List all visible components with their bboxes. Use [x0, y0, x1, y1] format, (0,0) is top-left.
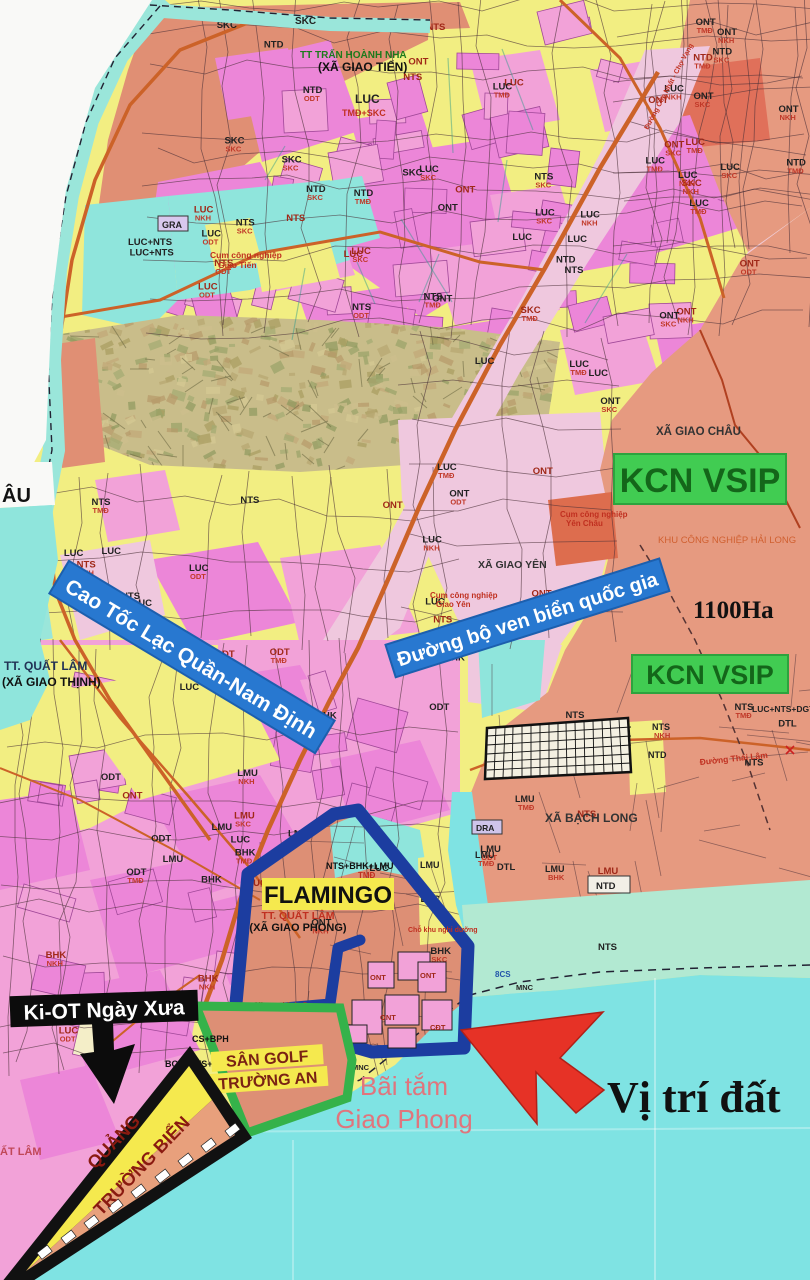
svg-text:NKH: NKH: [654, 731, 670, 740]
svg-text:SKC: SKC: [283, 164, 299, 173]
svg-text:Bãi tắm: Bãi tắm: [360, 1071, 448, 1101]
svg-text:ODT: ODT: [353, 311, 369, 320]
svg-text:Cụm công nghiệp: Cụm công nghiệp: [430, 591, 498, 600]
svg-text:Giao Yên: Giao Yên: [436, 600, 471, 609]
svg-text:NKH: NKH: [199, 982, 215, 991]
svg-text:ONT: ONT: [383, 500, 403, 511]
svg-text:XÃ GIAO YÊN: XÃ GIAO YÊN: [478, 558, 547, 571]
svg-text:NTD: NTD: [556, 254, 576, 265]
svg-text:CĐT: CĐT: [430, 1023, 446, 1032]
svg-text:ẤT LÂM: ẤT LÂM: [0, 1145, 42, 1158]
svg-text:NKH: NKH: [195, 213, 211, 222]
svg-text:TMĐ: TMĐ: [735, 711, 752, 720]
svg-text:LMU: LMU: [598, 866, 619, 877]
svg-text:NKH: NKH: [718, 36, 734, 45]
svg-text:Giao Tiến: Giao Tiến: [218, 260, 257, 270]
svg-text:ODT: ODT: [304, 94, 320, 103]
svg-text:TMĐ: TMĐ: [93, 506, 110, 515]
svg-text:SKC: SKC: [295, 16, 316, 27]
svg-text:SKC: SKC: [225, 145, 241, 154]
svg-text:ONT: ONT: [408, 57, 428, 68]
svg-text:TMĐ: TMĐ: [570, 368, 587, 377]
svg-text:DRA: DRA: [476, 823, 494, 833]
svg-text:ODT: ODT: [450, 498, 466, 507]
svg-text:TMĐ: TMĐ: [522, 314, 539, 323]
svg-text:Vị trí đất: Vị trí đất: [607, 1073, 781, 1122]
svg-text:NTD: NTD: [648, 750, 667, 760]
svg-text:ODT: ODT: [741, 267, 757, 276]
svg-text:NTS: NTS: [598, 942, 617, 953]
svg-text:ODT: ODT: [190, 572, 206, 581]
svg-text:TMĐ: TMĐ: [358, 871, 376, 880]
svg-text:8CS: 8CS: [495, 970, 511, 979]
svg-text:KHU CÔNG NGHIỆP HẢI LONG: KHU CÔNG NGHIỆP HẢI LONG: [658, 534, 796, 546]
svg-text:TMĐ: TMĐ: [271, 656, 288, 665]
svg-text:SKC: SKC: [536, 217, 552, 226]
svg-text:TMĐ: TMĐ: [690, 207, 707, 216]
svg-text:DTL: DTL: [497, 862, 516, 873]
svg-text:ONT: ONT: [533, 466, 553, 477]
svg-text:LUC: LUC: [588, 368, 608, 379]
svg-text:ODT: ODT: [202, 238, 218, 247]
svg-text:TMĐ: TMĐ: [355, 197, 372, 206]
svg-text:TMĐ: TMĐ: [494, 90, 511, 99]
svg-text:CS+BPH: CS+BPH: [192, 1034, 229, 1044]
svg-text:ODT: ODT: [60, 1035, 76, 1044]
svg-text:1100Ha: 1100Ha: [693, 597, 774, 624]
svg-text:NTD: NTD: [264, 40, 284, 51]
svg-text:SKC: SKC: [235, 820, 251, 829]
svg-text:ODT: ODT: [101, 772, 121, 783]
svg-text:SKC: SKC: [420, 173, 436, 182]
svg-text:TT. QUẤT LÂM: TT. QUẤT LÂM: [262, 909, 335, 922]
svg-text:NKH: NKH: [780, 113, 796, 122]
svg-text:SKC: SKC: [660, 320, 676, 329]
svg-text:ODT: ODT: [199, 290, 215, 299]
svg-text:ONT: ONT: [432, 294, 452, 305]
svg-text:LUC+NTS: LUC+NTS: [128, 237, 172, 248]
svg-text:TMĐ: TMĐ: [518, 803, 535, 812]
svg-text:LMU: LMU: [212, 822, 233, 833]
svg-text:MNC: MNC: [516, 983, 534, 992]
svg-text:TMĐ: TMĐ: [478, 859, 495, 868]
svg-text:NTS: NTS: [286, 213, 305, 224]
svg-text:TMĐ+SKC: TMĐ+SKC: [342, 108, 386, 118]
svg-text:(XÃ GIAO TIẾN): (XÃ GIAO TIẾN): [318, 59, 407, 74]
svg-text:NTS: NTS: [240, 495, 259, 506]
svg-text:TMĐ: TMĐ: [438, 471, 455, 480]
svg-text:Cụm công nghiệp: Cụm công nghiệp: [560, 510, 628, 519]
svg-text:NTD: NTD: [596, 881, 616, 892]
svg-text:ODT: ODT: [151, 834, 171, 845]
svg-text:SKC: SKC: [535, 180, 551, 189]
svg-text:NTS+BHK+LMU: NTS+BHK+LMU: [326, 861, 394, 871]
svg-text:(XÃ GIAO THỊNH): (XÃ GIAO THỊNH): [2, 674, 101, 689]
svg-text:TMĐ: TMĐ: [127, 876, 144, 885]
svg-text:TT. QUẤT LÂM: TT. QUẤT LÂM: [4, 658, 87, 673]
svg-text:ÂU: ÂU: [2, 483, 31, 507]
svg-text:(XÃ GIAO PHONG): (XÃ GIAO PHONG): [249, 921, 347, 934]
svg-text:ODT: ODT: [429, 702, 449, 713]
svg-text:NKH: NKH: [581, 218, 597, 227]
svg-text:LUC: LUC: [512, 232, 532, 243]
svg-text:Chỗ khu nghỉ dưỡng: Chỗ khu nghỉ dưỡng: [408, 925, 478, 934]
svg-text:LUC: LUC: [231, 834, 251, 845]
svg-text:KCN VSIP: KCN VSIP: [620, 462, 781, 500]
svg-text:NKH: NKH: [47, 959, 63, 968]
svg-text:KCN VSIP: KCN VSIP: [646, 660, 774, 690]
svg-text:LMU: LMU: [420, 860, 440, 870]
svg-text:SKC: SKC: [601, 405, 617, 414]
svg-text:Giao Phong: Giao Phong: [335, 1104, 472, 1134]
svg-text:LUC+NTS+DGT: LUC+NTS+DGT: [752, 704, 810, 714]
svg-text:SKC: SKC: [714, 55, 730, 64]
svg-text:LUC: LUC: [180, 682, 200, 693]
svg-text:LMU: LMU: [163, 854, 184, 865]
svg-text:BHK: BHK: [548, 873, 565, 882]
svg-text:LUC: LUC: [355, 92, 380, 106]
svg-text:TMĐ: TMĐ: [647, 165, 664, 174]
svg-text:NKH: NKH: [423, 544, 439, 553]
svg-text:TMĐ: TMĐ: [236, 857, 253, 866]
svg-text:SKC: SKC: [665, 149, 681, 158]
svg-text:NTS: NTS: [565, 710, 584, 721]
svg-text:DTL: DTL: [778, 718, 797, 729]
svg-text:LUC: LUC: [475, 356, 495, 367]
svg-text:FLAMINGO: FLAMINGO: [264, 882, 392, 909]
svg-text:LUC+NTS: LUC+NTS: [130, 247, 174, 258]
svg-text:Cụm công nghiệp: Cụm công nghiệp: [210, 250, 282, 260]
svg-text:ONT: ONT: [420, 971, 436, 980]
svg-text:NKH: NKH: [679, 179, 695, 188]
svg-text:ONT: ONT: [380, 1013, 396, 1022]
svg-text:XÃ BẠCH LONG: XÃ BẠCH LONG: [545, 810, 638, 825]
svg-text:LUC: LUC: [101, 546, 121, 557]
svg-text:TMĐ: TMĐ: [697, 26, 714, 35]
svg-text:ONT: ONT: [370, 973, 386, 982]
svg-text:SKC: SKC: [307, 193, 323, 202]
svg-text:GRA: GRA: [162, 220, 183, 230]
svg-text:NKH: NKH: [238, 777, 254, 786]
svg-text:SKC: SKC: [237, 226, 253, 235]
svg-text:BHK: BHK: [201, 875, 222, 886]
svg-text:ONT: ONT: [438, 203, 458, 214]
svg-text:XÃ GIAO CHÂU: XÃ GIAO CHÂU: [656, 425, 741, 438]
svg-text:LUC: LUC: [64, 548, 84, 559]
svg-text:TMĐ: TMĐ: [787, 167, 804, 176]
svg-text:SKC: SKC: [721, 171, 737, 180]
svg-text:SKC: SKC: [352, 255, 368, 264]
svg-text:Yên Châu: Yên Châu: [566, 519, 603, 528]
svg-text:LUC: LUC: [567, 234, 587, 245]
svg-text:TMĐ: TMĐ: [694, 61, 711, 70]
svg-text:NTS: NTS: [565, 265, 584, 276]
svg-text:TMĐ: TMĐ: [687, 146, 704, 155]
svg-text:ONT: ONT: [122, 791, 142, 802]
svg-text:ONT: ONT: [455, 184, 475, 195]
svg-text:NKH: NKH: [683, 187, 699, 196]
svg-text:SKC: SKC: [694, 100, 710, 109]
svg-text:NKH: NKH: [677, 315, 693, 324]
